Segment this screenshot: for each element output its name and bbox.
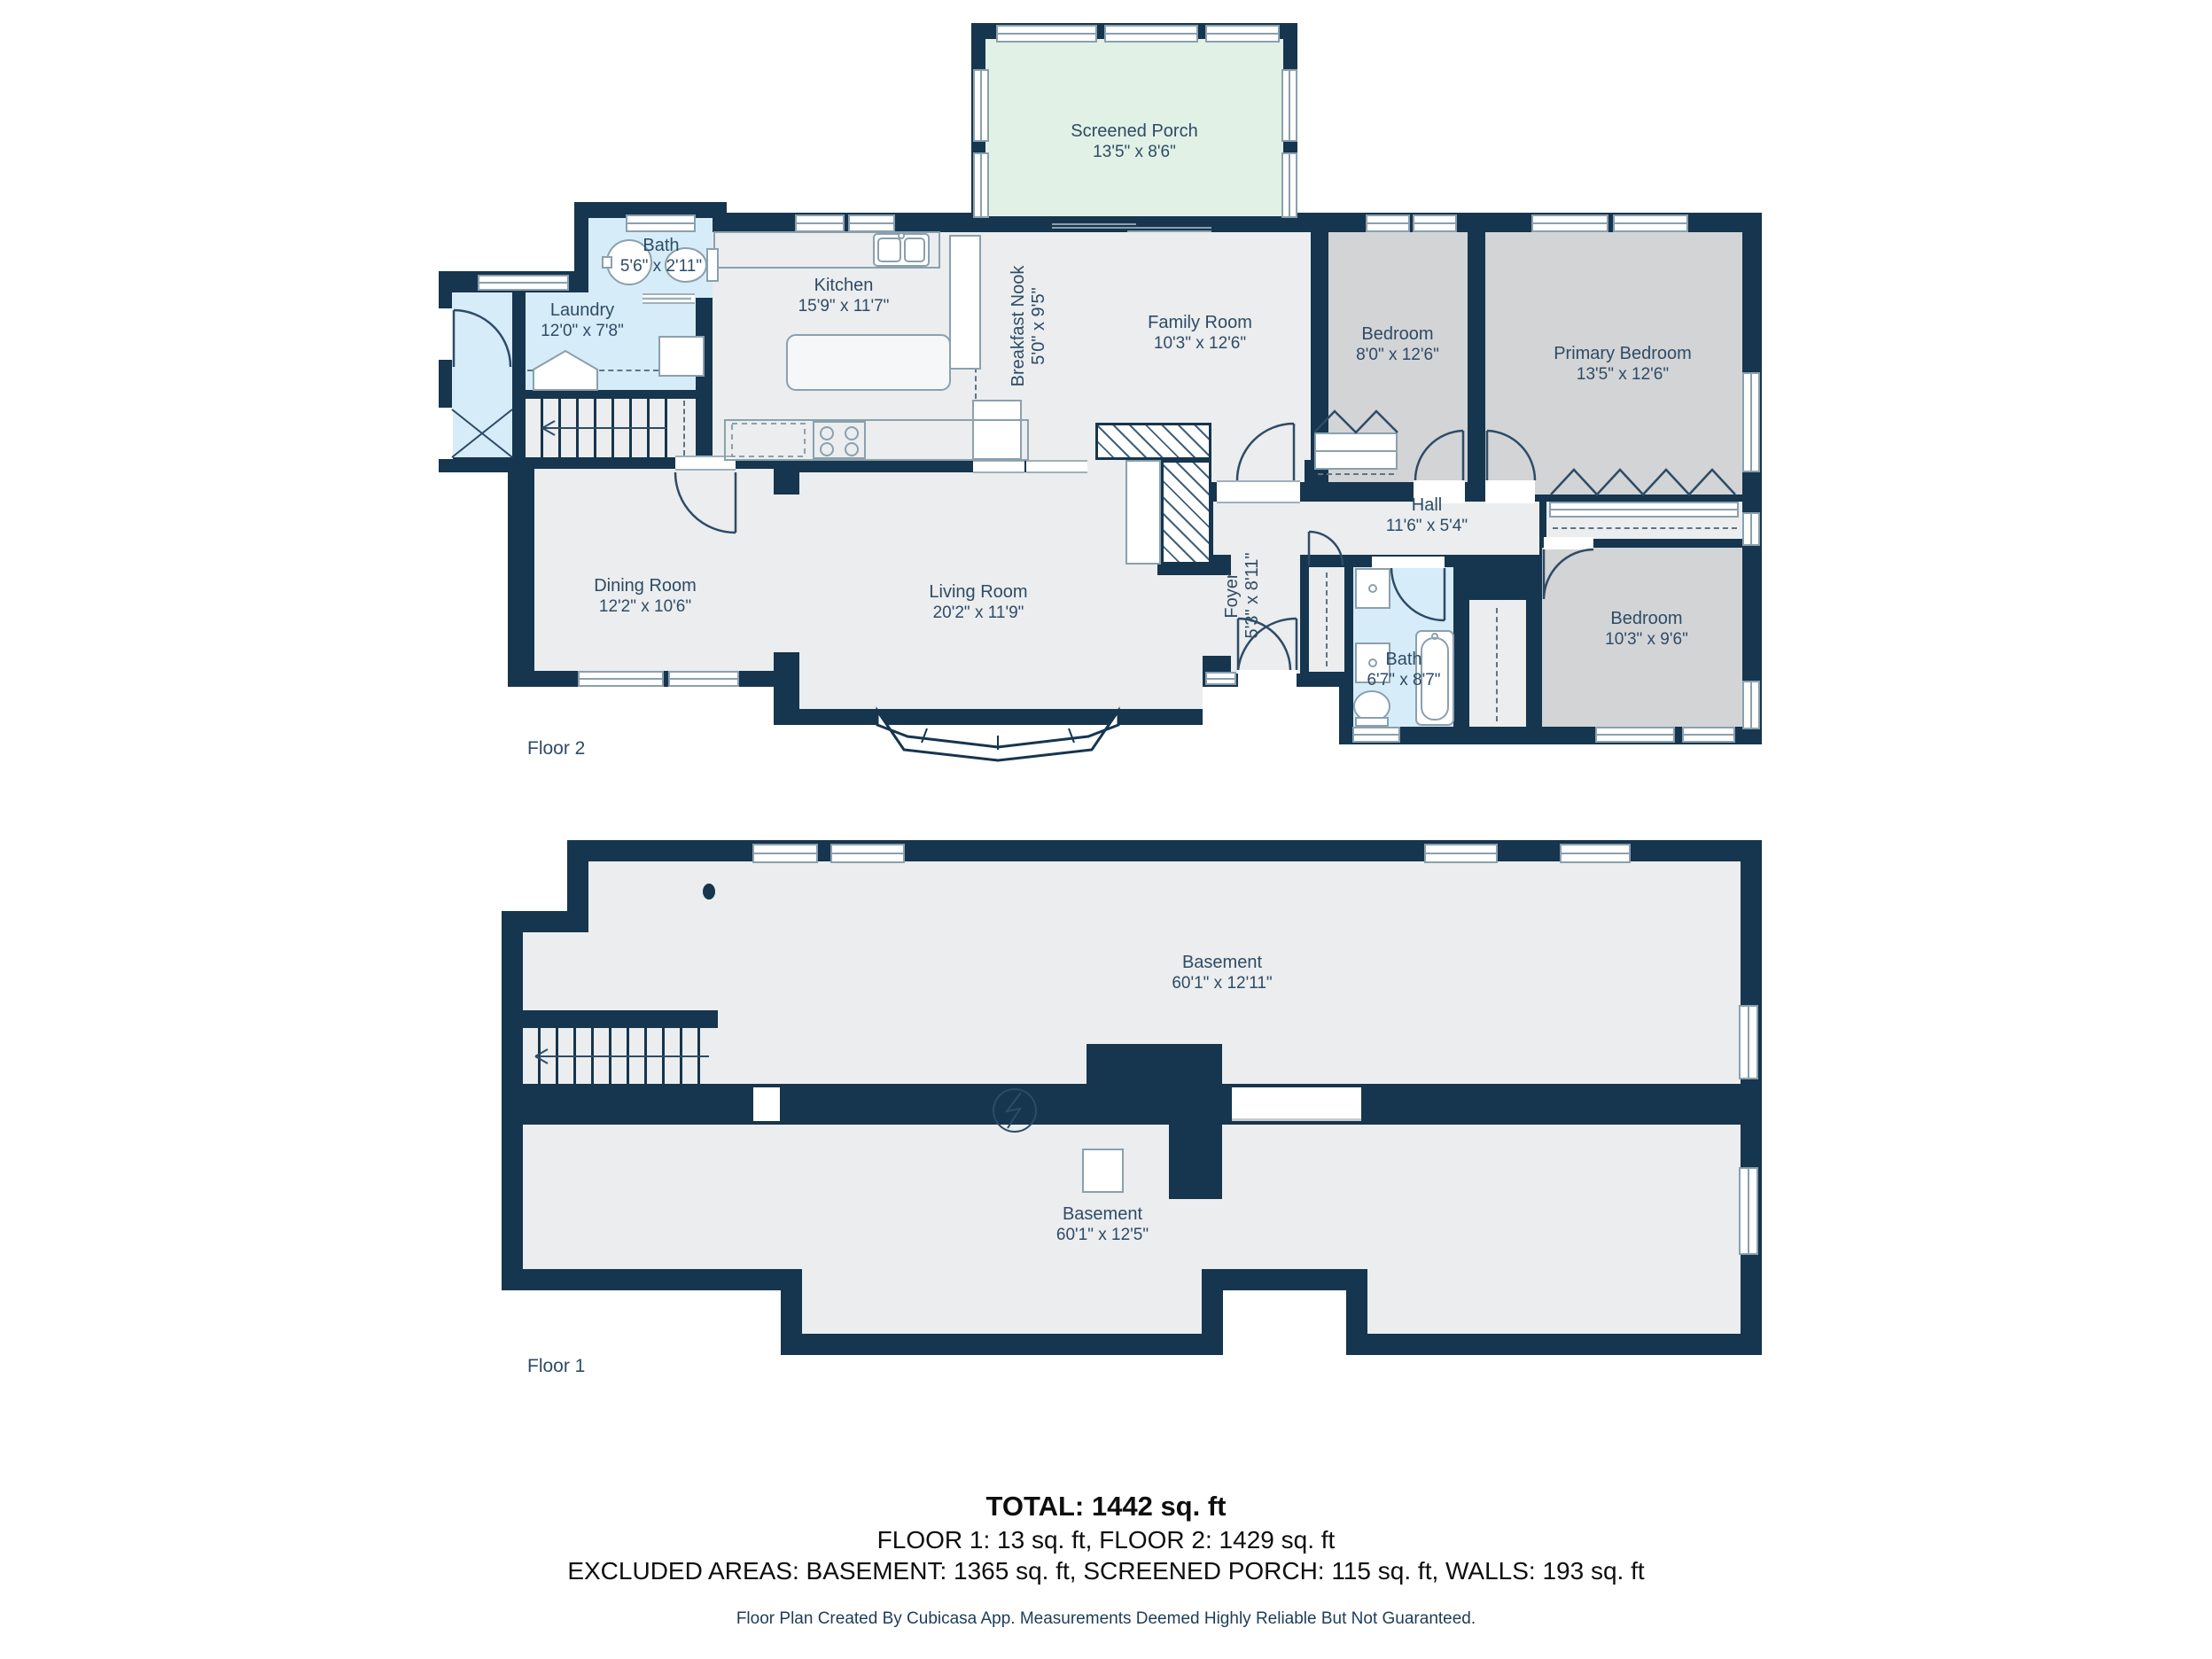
- furnace-block-leg: [1169, 1125, 1222, 1199]
- room-bath-lower: [1353, 567, 1453, 727]
- porch-window: [973, 69, 989, 142]
- closet-slider-primary: [1549, 502, 1739, 518]
- room-basement-lower: [523, 1125, 1741, 1269]
- stair-wall-basement: [523, 1010, 718, 1028]
- label-bedroom-top: Bedroom8'0" x 12'6": [1356, 323, 1439, 366]
- closet-dash-bath-lower: [1496, 608, 1498, 721]
- label-dining-room: Dining Room12'2" x 10'6": [594, 575, 697, 618]
- opening-primary-door: [1485, 480, 1535, 503]
- bedroom-lower-window: [1682, 727, 1735, 743]
- label-basement-upper: Basement60'1" x 12'11": [1172, 952, 1272, 994]
- primary-window: [1531, 214, 1608, 232]
- dining-window: [578, 671, 664, 687]
- opening-family-living: [1026, 460, 1087, 473]
- basement-window: [1424, 844, 1498, 863]
- label-screened-porch: Screened Porch13'5" x 8'6": [1071, 121, 1197, 163]
- opening-bedroom-lower-door: [1544, 537, 1593, 549]
- chimney-cap: [1157, 565, 1212, 575]
- room-laundry-closet: [452, 292, 512, 457]
- closet-dash-primary: [1553, 527, 1737, 529]
- excluded-areas-text: EXCLUDED AREAS: BASEMENT: 1365 sq. ft, S…: [0, 1557, 2212, 1585]
- opening-family-hall: [1217, 480, 1300, 503]
- opening-dining-living: [774, 495, 799, 652]
- room-basement-lower-bump1: [802, 1269, 1202, 1334]
- porch-window: [973, 152, 989, 218]
- laundry-dash: [527, 370, 658, 371]
- bedroom-lower-side-window: [1742, 681, 1760, 729]
- bay-window-mullions: [922, 728, 1074, 750]
- label-family-room: Family Room10'3" x 12'6": [1148, 312, 1252, 354]
- opening-bath-upper-door: [643, 293, 695, 304]
- basement-window: [1739, 1005, 1758, 1079]
- bedroom-top-window: [1413, 214, 1457, 232]
- porch-window: [1205, 25, 1280, 43]
- porch-window: [1104, 25, 1198, 43]
- primary-side-window: [1742, 372, 1760, 472]
- opening-kitchen-living: [973, 460, 1024, 473]
- basement-window: [752, 844, 818, 863]
- opening-front-door: [1238, 670, 1297, 687]
- stairs-basement: [523, 1028, 715, 1084]
- porch-window: [996, 25, 1097, 43]
- closet-box-bedroom-top: [1314, 432, 1398, 470]
- dining-window: [668, 671, 739, 687]
- stairs-floor2: [526, 399, 674, 457]
- label-basement-lower: Basement60'1" x 12'5": [1056, 1203, 1149, 1246]
- label-primary-bedroom: Primary Bedroom13'5" x 12'6": [1554, 343, 1692, 386]
- landing-dash: [683, 401, 685, 456]
- basement-window: [1739, 1167, 1758, 1255]
- chimney-hatch-side: [1161, 460, 1211, 565]
- floor2-tag: Floor 2: [527, 738, 585, 759]
- label-laundry: Laundry12'0" x 7'8": [541, 300, 624, 342]
- porch-window: [1281, 69, 1297, 142]
- label-kitchen: Kitchen15'9" x 11'7": [798, 275, 890, 317]
- bedroom-top-window: [1366, 214, 1410, 232]
- bath-lower-window: [1352, 727, 1400, 743]
- credit-text: Floor Plan Created By Cubicasa App. Meas…: [0, 1609, 2212, 1629]
- bath-upper-window: [626, 214, 696, 232]
- floor1-tag: Floor 1: [527, 1356, 585, 1377]
- label-bedroom-lower: Bedroom10'3" x 9'6": [1605, 608, 1688, 650]
- opening-dining-door: [675, 456, 736, 471]
- label-bath-lower: Bath6'7" x 8'7": [1367, 649, 1440, 691]
- furnace-block: [1087, 1044, 1222, 1125]
- floor-plan-canvas: Screened Porch13'5" x 8'6" Bath5'6" x 2'…: [0, 0, 2212, 1659]
- primary-window: [1613, 214, 1688, 232]
- basement-window: [1560, 844, 1631, 863]
- closet-dash-bedroom-top: [1318, 473, 1394, 475]
- nook-divider-dash: [975, 236, 977, 399]
- closet-dash-foyer: [1326, 572, 1328, 666]
- closet-bath-lower: [1469, 600, 1526, 727]
- total-area-text: TOTAL: 1442 sq. ft: [0, 1491, 2212, 1523]
- opening-bath-lower-door: [1372, 557, 1445, 568]
- label-breakfast-nook: Breakfast Nook5'0" x 9'5": [1009, 266, 1049, 387]
- front-sidelite-window: [1205, 672, 1236, 685]
- chimney-hatch-top: [1095, 423, 1211, 460]
- basement-seam-line: [1232, 1118, 1361, 1121]
- opening-wing-xdoor: [439, 408, 453, 459]
- floor-areas-text: FLOOR 1: 13 sq. ft, FLOOR 2: 1429 sq. ft: [0, 1526, 2212, 1554]
- fireplace-hearth: [1125, 460, 1161, 565]
- label-bath-upper: Bath5'6" x 2'11": [620, 235, 702, 277]
- room-dining: [534, 469, 774, 671]
- bedroom-lower-window: [1595, 727, 1675, 743]
- opening-basement-left: [753, 1087, 780, 1121]
- label-foyer: Foyer5'3" x 8'11": [1222, 552, 1263, 638]
- wing-window: [478, 275, 569, 291]
- kitchen-window: [795, 214, 845, 232]
- basement-window: [830, 844, 905, 863]
- label-hall: Hall11'6" x 5'4": [1386, 495, 1468, 537]
- opening-wing-closet-door: [439, 308, 453, 360]
- opening-basement-right: [1232, 1087, 1361, 1121]
- corridor-side-window: [1742, 512, 1760, 546]
- porch-window: [1281, 152, 1297, 218]
- label-living-room: Living Room20'2" x 11'9": [929, 581, 1027, 624]
- kitchen-window: [848, 214, 895, 232]
- room-basement-lower-bump2: [1367, 1269, 1741, 1334]
